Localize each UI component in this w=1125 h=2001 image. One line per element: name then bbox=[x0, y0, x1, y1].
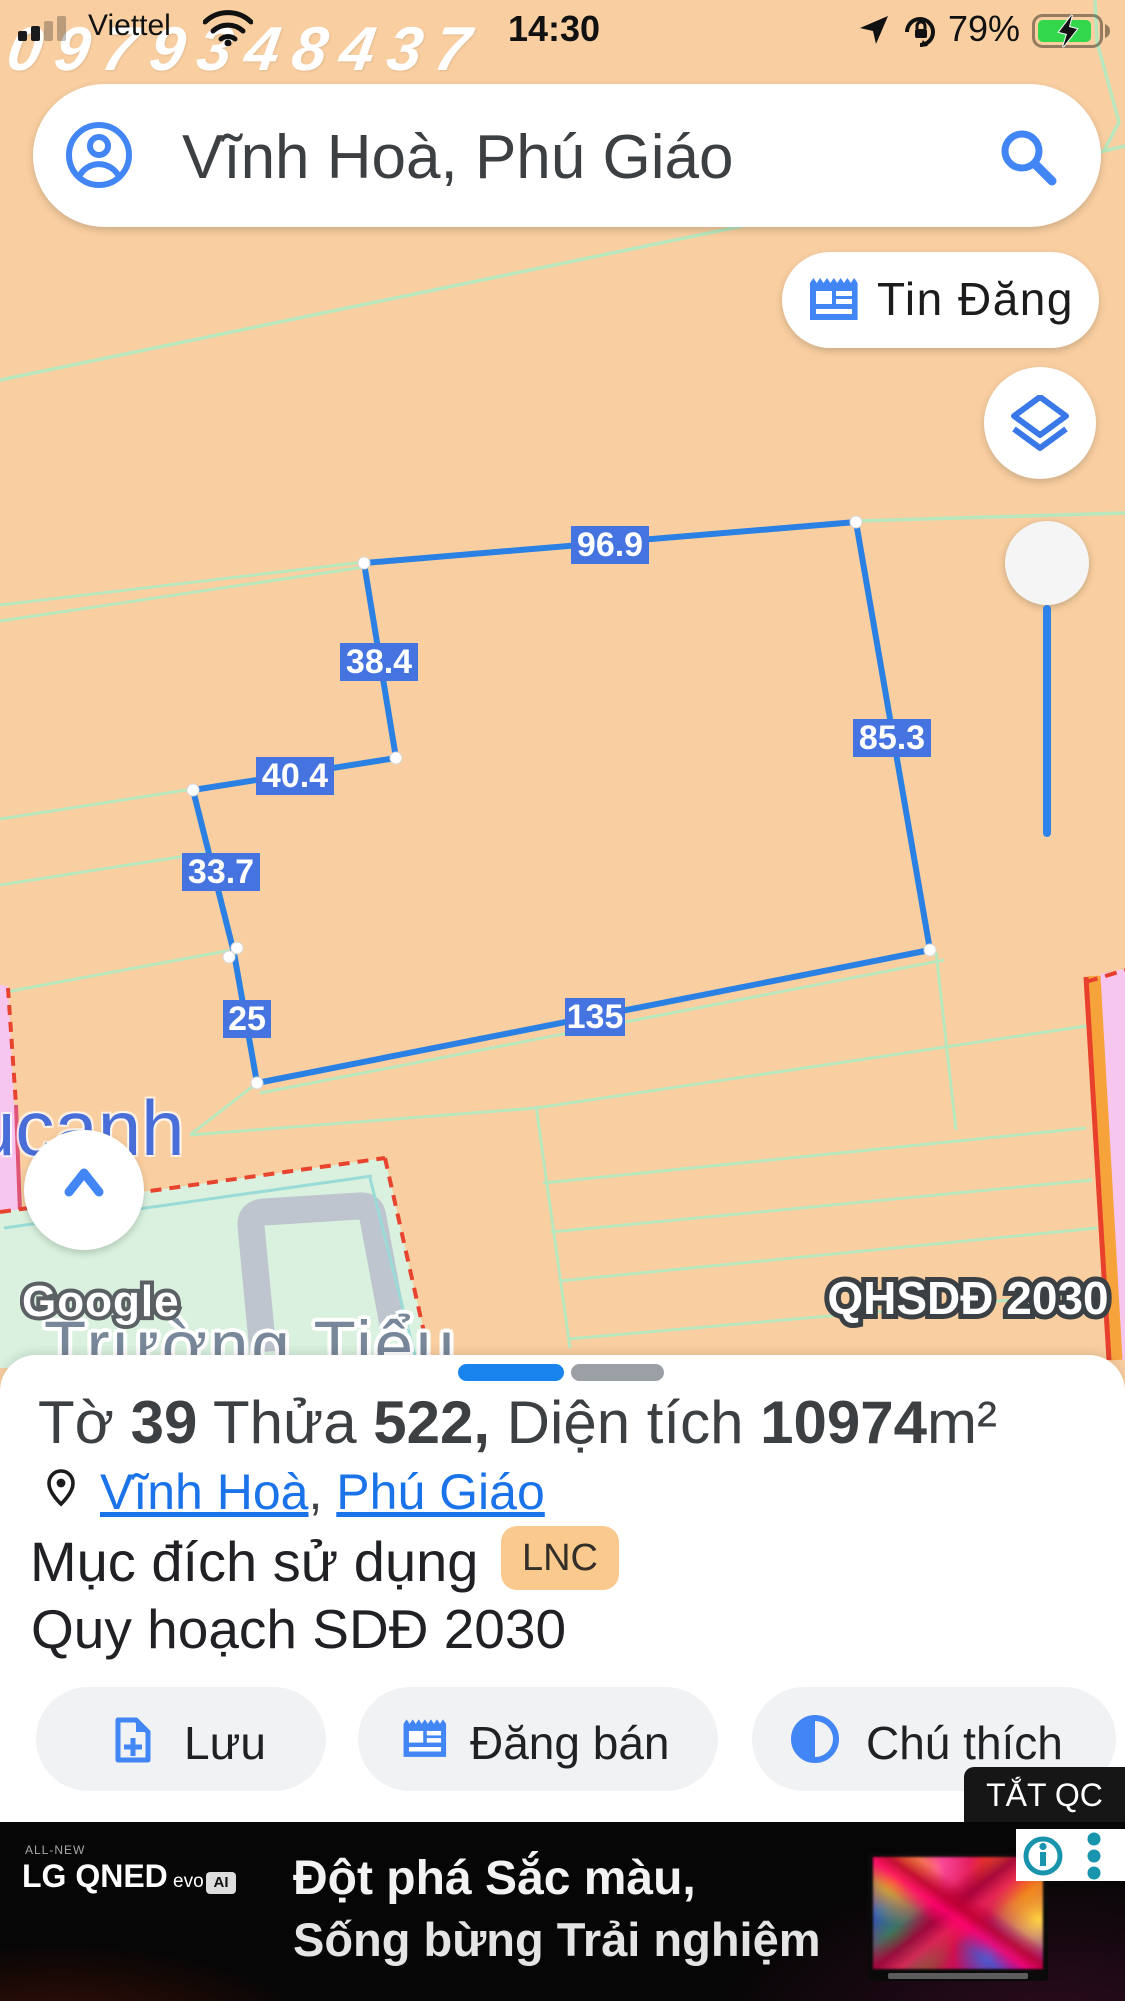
svg-text:33.7: 33.7 bbox=[188, 853, 254, 891]
svg-text:Google: Google bbox=[22, 1277, 180, 1326]
svg-text:96.9: 96.9 bbox=[577, 526, 643, 564]
svg-text:38.4: 38.4 bbox=[346, 643, 412, 681]
svg-text:QHSDĐ 2030: QHSDĐ 2030 bbox=[827, 1272, 1108, 1324]
svg-text:135: 135 bbox=[567, 998, 624, 1036]
svg-text:40.4: 40.4 bbox=[262, 757, 328, 795]
svg-text:85.3: 85.3 bbox=[859, 719, 925, 757]
svg-text:25: 25 bbox=[228, 1000, 266, 1038]
